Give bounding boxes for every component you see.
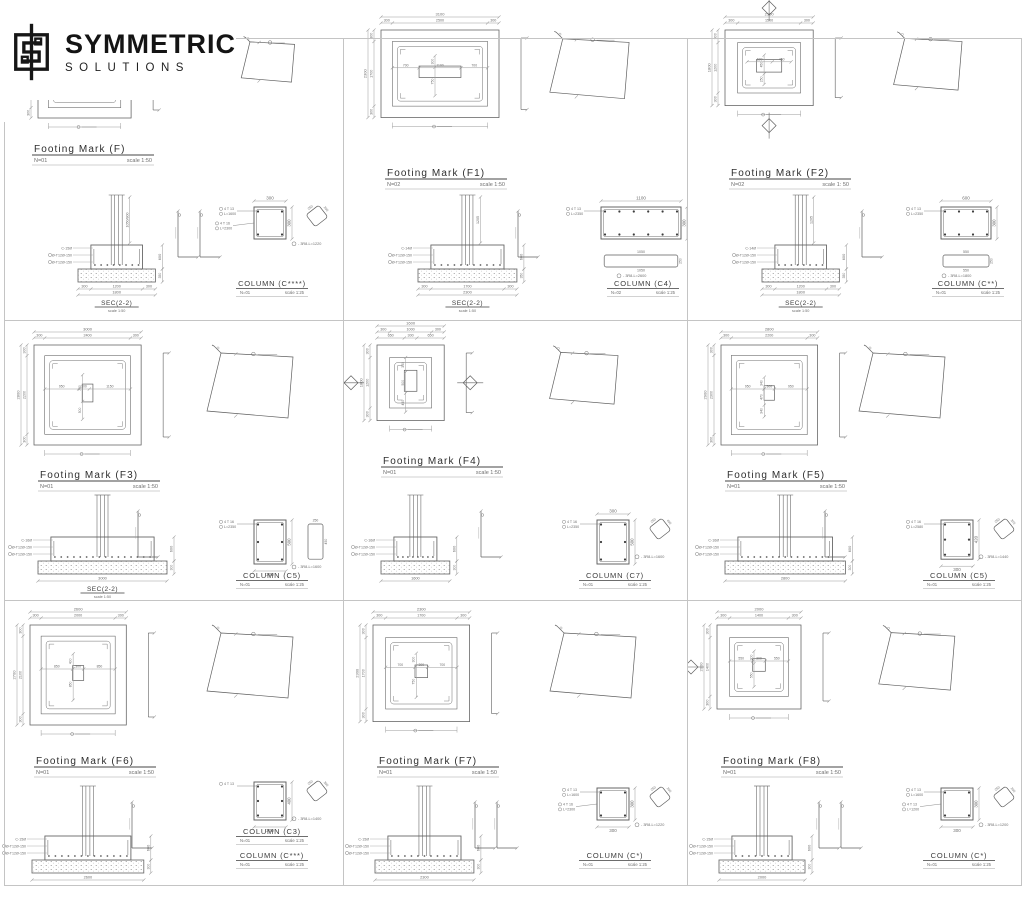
drawing-circle <box>292 817 296 821</box>
dim-label: 550 <box>774 657 780 661</box>
dim-label: 2300 <box>355 668 360 678</box>
rebar-callout: 4 T 13 <box>907 803 917 807</box>
drawing-circle <box>742 855 744 857</box>
drawing-circle <box>562 520 565 523</box>
footing-title-block: Footing Mark (F8)N=01scale 1:50 <box>721 756 843 777</box>
drawing-circle <box>784 264 786 266</box>
drawing-circle <box>676 210 678 212</box>
dim-label: 2500 <box>436 19 444 23</box>
drawing-path <box>553 346 561 353</box>
dim-label: 1400 <box>755 614 763 618</box>
dim-label: 300 <box>361 628 365 634</box>
drawing-circle <box>944 814 946 816</box>
drawing-line <box>577 694 580 697</box>
column-count: N=01 <box>583 582 594 587</box>
column-scale: scale 1:25 <box>285 838 305 843</box>
dim-label: 300 <box>133 334 139 338</box>
panel-drawing-svg: 3002500300310030017003002300700110070030… <box>343 0 687 320</box>
drawing-circle <box>54 556 56 558</box>
dim-label: 1600 <box>406 321 416 326</box>
footing-title-block: Footing Mark (F7)N=01scale 1:50 <box>377 756 499 777</box>
drawing-circle <box>809 264 811 266</box>
drawing-path <box>555 625 564 633</box>
drawing-circle <box>803 264 805 266</box>
dim-label: 300 <box>709 347 713 353</box>
footing-panel-f8: 3001400300200030014003002000550300550300… <box>687 600 1024 920</box>
drawing-circle <box>100 264 102 266</box>
brand-logo-icon <box>10 6 53 98</box>
drawing-circle <box>862 214 865 217</box>
dim-label: 1700 <box>361 669 365 677</box>
drawing-line <box>571 401 574 404</box>
tie-note: - 3R8-L=1440 <box>985 555 1008 559</box>
dim-label: 1050/800 <box>125 213 129 228</box>
dim-label: 450 <box>324 539 328 545</box>
drawing-rect <box>392 41 487 106</box>
dim-label: 300 <box>705 700 709 706</box>
dim-label: 300 <box>361 712 365 718</box>
bar-bending-detail <box>550 625 636 698</box>
dim-label: 300 <box>682 219 687 227</box>
dim-label: 700 <box>439 663 445 667</box>
dim-label: 1700 <box>369 70 373 78</box>
tie-note: - 3R8-L=1600 <box>298 565 321 569</box>
drawing-rect <box>381 30 499 118</box>
column-scale: scale 1:25 <box>285 290 305 295</box>
drawing-circle <box>797 264 799 266</box>
rebar-callout: L=1600 <box>911 793 923 797</box>
dim-label: 700 <box>397 663 403 667</box>
section-callout: Ø-T12Ø-150 <box>736 260 756 264</box>
footing-plan: 3002200300280030023003002900950300950340… <box>703 327 848 456</box>
drawing-circle <box>906 212 909 215</box>
tie-note: - 3R8-L=1800 <box>948 274 971 278</box>
column-title: COLUMN (C5) <box>930 571 988 580</box>
dim-label: 2300 <box>420 875 429 880</box>
drawing-circle <box>972 233 974 235</box>
l-bar-detail <box>823 509 847 558</box>
drawing-circle <box>766 556 768 558</box>
rebar-callout: 4 T 16 <box>567 520 577 524</box>
drawing-circle <box>562 525 565 528</box>
drawing-rect <box>604 255 678 267</box>
drawing-rect <box>51 537 154 561</box>
dim-label: 300 <box>848 565 852 571</box>
drawing-circle <box>217 347 219 349</box>
column-section-detail: 6003004 T 13L=2350550550250- 3R8-L=1800C… <box>906 196 1004 297</box>
drawing-circle <box>958 210 960 212</box>
drawing-circle <box>292 242 296 246</box>
drawing-circle <box>219 520 222 523</box>
drawing-circle <box>422 556 424 558</box>
drawing-circle <box>624 814 626 816</box>
drawing-circle <box>257 541 259 543</box>
dim-label: 700 <box>471 63 477 67</box>
drawing-circle <box>481 514 484 517</box>
dim-label: 300 <box>408 334 414 338</box>
drawing-line <box>257 79 260 82</box>
footing-section: C-16ØØ-T12Ø-150Ø-T12Ø-1506003002800 <box>695 495 854 583</box>
grid-divider-vertical-2 <box>687 38 688 886</box>
dim-label: 250 <box>990 258 994 264</box>
section-callout: C-16Ø <box>21 538 32 542</box>
drawing-circle <box>624 541 626 543</box>
dim-label: 450 <box>779 57 785 61</box>
drawing-circle <box>281 233 283 235</box>
drawing-circle <box>741 556 743 558</box>
drawing-rect <box>308 524 323 559</box>
drawing-rect <box>721 345 818 445</box>
drawing-circle <box>566 212 569 215</box>
drawing-circle <box>437 855 439 857</box>
dim-label: 3000 <box>83 327 93 332</box>
footing-title: Footing Mark (F2) <box>731 168 829 179</box>
dim-label: 300 <box>720 614 726 618</box>
drawing-rect <box>736 360 802 429</box>
drawing-circle <box>398 855 400 857</box>
section-title: SEC(2-2) <box>101 300 132 307</box>
drawing-line <box>234 694 237 697</box>
drawing-rect <box>30 625 126 725</box>
footing-plan: 3002000300260030021003002700850300850400… <box>12 607 156 736</box>
footing-panel-f4: 6503006503001000300160030012003001800350… <box>343 320 687 600</box>
drawing-rect <box>404 370 417 391</box>
dim-label: 950 <box>59 385 65 389</box>
section-title: SEC(2-2) <box>87 586 118 593</box>
drawing-circle <box>784 556 786 558</box>
drawing-circle <box>391 855 393 857</box>
section-callout: Ø-T12Ø-150 <box>52 253 72 257</box>
column-count: N=01 <box>583 862 594 867</box>
rebar-callout: 4 T 13 <box>911 207 921 211</box>
drawing-sheet: 300Footing Mark (F)N=01scale 1:501050/80… <box>0 0 1024 920</box>
drawing-rect <box>944 210 989 237</box>
footing-title-block: Footing Mark (F6)N=01scale 1:50 <box>34 756 156 777</box>
concrete-hatch <box>33 861 144 873</box>
drawing-rect <box>731 355 807 434</box>
section-callout: C-14Ø <box>745 246 756 250</box>
drawing-circle <box>131 264 133 266</box>
stirrup-detail: 250250 <box>990 779 1019 808</box>
drawing-circle <box>558 803 561 806</box>
drawing-circle <box>268 41 272 45</box>
concrete-hatch <box>79 270 155 282</box>
panel-drawing-svg: 3002400300300030022003002800950300115075… <box>0 320 343 600</box>
section-callout: C-16Ø <box>708 538 719 542</box>
footing-plan: 3002400300300030022003002800950300115075… <box>16 327 171 456</box>
dim-label: 300 <box>365 411 369 417</box>
dim-label: 300 <box>490 19 496 23</box>
footing-title: Footing Mark (F3) <box>40 470 138 481</box>
drawing-circle <box>132 805 135 808</box>
drawing-circle <box>600 558 602 560</box>
drawing-circle <box>281 541 283 543</box>
drawing-path <box>894 38 962 90</box>
drawing-circle <box>904 352 908 356</box>
drawing-circle <box>662 233 664 235</box>
panel-drawing-svg: 6503006503001000300160030012003001800350… <box>343 320 687 600</box>
drawing-circle <box>944 539 946 541</box>
drawing-circle <box>98 556 100 558</box>
drawing-circle <box>105 556 107 558</box>
drawing-circle <box>760 556 762 558</box>
dim-label: 2400 <box>83 334 91 338</box>
drawing-rect <box>943 255 989 267</box>
rebar-callout: 4 T 16 <box>220 222 230 226</box>
footing-count: N=01 <box>379 770 392 776</box>
drawing-circle <box>119 264 121 266</box>
drawing-rect <box>735 643 784 692</box>
dim-label: 500 <box>287 538 292 546</box>
dim-label: 600 <box>847 545 852 552</box>
drawing-circle <box>747 556 749 558</box>
section-scale: scale 1:50 <box>459 309 476 313</box>
dim-label: 600 <box>841 253 846 260</box>
footing-title: Footing Mark (F1) <box>387 168 485 179</box>
dim-label: 300 <box>974 800 979 808</box>
drawing-circle <box>281 814 283 816</box>
dim-label: 550 <box>963 269 969 273</box>
drawing-rect <box>601 207 681 239</box>
drawing-rect <box>944 523 971 557</box>
footing-scale: scale 1: 50 <box>822 182 849 188</box>
concrete-hatch <box>763 270 839 282</box>
dim-label: 1800 <box>707 63 712 73</box>
column-section-detail: 3005004 T 16L=2350250450- 3R8-L=1600COLU… <box>562 509 675 589</box>
drawing-circle <box>94 855 96 857</box>
drawing-circle <box>560 627 562 629</box>
tie-note: - 3R8-L=1600 <box>641 555 664 559</box>
dim-label: 600 <box>962 196 970 201</box>
drawing-circle <box>427 556 429 558</box>
dim-label: 2000 <box>755 607 765 612</box>
column-section-detail: 3003004 T 13L=16004 T 13L=1200250250- 3R… <box>902 779 1019 869</box>
drawing-circle <box>107 855 109 857</box>
dim-label: 300 <box>630 800 635 808</box>
dim-label: 300 <box>430 59 434 65</box>
l-bar-detail <box>473 800 497 849</box>
drawing-circle <box>486 264 488 266</box>
drawing-circle <box>595 632 599 636</box>
dim-label: 300 <box>75 665 81 669</box>
dim-label: 350 <box>401 362 405 368</box>
drawing-circle <box>402 556 404 558</box>
section-callout: C-15Ø <box>15 837 26 841</box>
footing-count: N=01 <box>383 470 396 476</box>
drawing-circle <box>215 227 218 230</box>
stirrup-detail: 250370 <box>990 511 1019 540</box>
section-callout: Ø-T12Ø-150 <box>699 545 719 549</box>
rebar-callout: L=2350 <box>224 525 236 529</box>
drawing-rect <box>45 356 131 435</box>
drawing-rect <box>743 48 796 88</box>
column-title: COLUMN (C*) <box>587 851 644 860</box>
column-scale: scale 1:25 <box>285 862 305 867</box>
drawing-circle <box>562 788 565 791</box>
section-callout: Ø-T12Ø-150 <box>6 851 26 855</box>
drawing-circle <box>748 855 750 857</box>
footing-count: N=01 <box>34 158 47 164</box>
drawing-circle <box>281 800 283 802</box>
drawing-circle <box>130 556 132 558</box>
tie-note: - 3R8-L=1400 <box>298 817 321 821</box>
drawing-circle <box>772 556 774 558</box>
footing-plan: 3001500300210030012003001800600450450250 <box>707 0 843 139</box>
drawing-circle <box>790 556 792 558</box>
drawing-circle <box>600 814 602 816</box>
footing-scale: scale 1:50 <box>133 484 158 490</box>
section-callout: Ø-T12Ø-150 <box>392 260 412 264</box>
dim-label: 500 <box>630 538 635 546</box>
sheet-border-top <box>232 38 1022 39</box>
drawing-circle <box>944 791 946 793</box>
drawing-circle <box>106 264 108 266</box>
drawing-circle <box>968 814 970 816</box>
column-count: N=01 <box>927 862 938 867</box>
footing-scale: scale 1:50 <box>129 770 154 776</box>
rebar-callout: 4 T 13 <box>571 207 581 211</box>
rebar-callout: 4 T 13 <box>224 207 234 211</box>
panel-drawing-svg: 3002000300260030021003002700850300850400… <box>0 600 343 920</box>
drawing-rect <box>738 43 801 93</box>
footing-section: 1050/800C-15ØØ-T12Ø-150Ø-T12Ø-1506003503… <box>48 195 164 313</box>
dim-label: 600 <box>145 844 150 851</box>
drawing-circle <box>443 855 445 857</box>
rebar-callout: L=1200 <box>907 808 919 812</box>
footing-title-block: Footing Mark (F)N=01scale 1:50 <box>32 144 154 165</box>
l-bar-detail <box>130 800 154 849</box>
stirrup-detail: 250450 <box>646 511 675 540</box>
dim-label: 1050 <box>637 269 645 273</box>
dim-label: 300 <box>609 828 617 833</box>
dim-label: 1205 <box>476 216 480 224</box>
drawing-circle <box>407 556 409 558</box>
drawing-circle <box>774 855 776 857</box>
dim-label: 300 <box>452 565 456 571</box>
dim-label: 300 <box>765 285 771 289</box>
section-callout: Ø-T12Ø-150 <box>693 851 713 855</box>
drawing-circle <box>215 222 218 225</box>
drawing-circle <box>397 556 399 558</box>
dim-label: 750 <box>78 385 82 391</box>
column-title: COLUMN (C7) <box>586 571 644 580</box>
drawing-rect <box>377 345 444 421</box>
drawing-path <box>879 633 955 690</box>
dim-label: 850 <box>69 681 73 687</box>
drawing-circle <box>797 556 799 558</box>
column-scale: scale 1:25 <box>628 582 648 587</box>
dim-label: 250 <box>760 76 764 82</box>
drawing-circle <box>467 264 469 266</box>
drawing-rect <box>725 30 813 106</box>
dim-label: 350 <box>520 273 524 279</box>
drawing-circle <box>790 264 792 266</box>
l-bar-detail <box>860 209 884 258</box>
dim-label: 300 <box>18 627 22 633</box>
drawing-circle <box>617 274 621 278</box>
drawing-circle <box>456 855 458 857</box>
section-callout: Ø-T12Ø-150 <box>12 552 32 556</box>
dim-label: 300 <box>22 347 26 353</box>
drawing-circle <box>906 520 909 523</box>
column-count: N=01 <box>240 290 251 295</box>
drawing-circle <box>292 565 296 569</box>
drawing-circle <box>124 556 126 558</box>
drawing-circle <box>518 214 521 217</box>
drawing-line <box>233 223 254 226</box>
dim-label: 300 <box>26 110 30 116</box>
drawing-rect <box>257 523 284 562</box>
column-title: COLUMN (C5) <box>243 571 301 580</box>
dim-label: 300 <box>756 657 762 661</box>
section-title: SEC(2-2) <box>452 300 483 307</box>
footing-count: N=01 <box>40 484 53 490</box>
column-title: COLUMN (C4) <box>614 279 672 288</box>
bar-bending-detail <box>207 625 293 698</box>
footing-scale: scale 1:50 <box>820 484 845 490</box>
bar-bending-detail <box>550 31 629 98</box>
column-count: N=01 <box>240 838 251 843</box>
drawing-circle <box>450 855 452 857</box>
drawing-circle <box>676 233 678 235</box>
dim-label: 1150 <box>106 385 113 389</box>
drawing-circle <box>600 791 602 793</box>
drawing-circle <box>559 33 561 35</box>
column-scale: scale 1:25 <box>285 582 305 587</box>
dim-label: 300 <box>32 614 38 618</box>
drawing-circle <box>475 805 478 808</box>
footing-title: Footing Mark (F7) <box>379 756 477 767</box>
drawing-line <box>915 87 918 90</box>
dim-label: 340 <box>760 408 764 414</box>
dim-label: 550 <box>738 657 744 661</box>
footing-title: Footing Mark (F6) <box>36 756 134 767</box>
footing-title-block: Footing Mark (F4)N=01scale 1:50 <box>381 456 503 477</box>
column-count: N=02 <box>611 290 622 295</box>
dim-label: 1600 <box>411 576 420 581</box>
drawing-circle <box>618 233 620 235</box>
drawing-path <box>883 625 891 632</box>
drawing-line <box>575 95 578 98</box>
panel-drawing-svg: 3002200300280030023003002900950300950340… <box>687 320 1024 600</box>
footing-section: C-15ØØ-T12Ø-150Ø-T12Ø-1506003002300 <box>345 786 482 882</box>
l-bar-detail <box>176 209 200 258</box>
drawing-circle <box>499 264 501 266</box>
dim-label: 2800 <box>16 390 21 400</box>
footing-section: 1205C-14ØØ-T12Ø-150Ø-T12Ø-15060035030012… <box>732 195 848 313</box>
section-callout: Ø-T12Ø-150 <box>12 545 32 549</box>
dim-label: 300 <box>435 328 441 332</box>
drawing-circle <box>257 523 259 525</box>
brand-name: SYMMETRIC <box>65 31 236 58</box>
drawing-circle <box>901 33 903 35</box>
l-bar-detail <box>516 209 540 258</box>
drawing-circle <box>887 627 889 629</box>
section-callout: Ø-T12Ø-150 <box>392 253 412 257</box>
drawing-circle <box>821 556 823 558</box>
footing-section: 1205C-14ØØ-T12Ø-150Ø-T12Ø-15060035030017… <box>388 195 525 313</box>
dim-label: 1200 <box>713 64 717 72</box>
footing-plan: 3002500300310030017003002300700110070030… <box>363 12 529 129</box>
dim-label: 300 <box>18 716 22 722</box>
section-callout: C-15Ø <box>61 246 72 250</box>
drawing-circle <box>803 556 805 558</box>
footing-panel-f1: 3002500300310030017003002300700110070030… <box>343 0 687 320</box>
drawing-circle <box>906 207 909 210</box>
drawing-path <box>241 42 294 82</box>
dim-label: 300 <box>146 864 150 870</box>
concrete-hatch <box>419 270 517 282</box>
